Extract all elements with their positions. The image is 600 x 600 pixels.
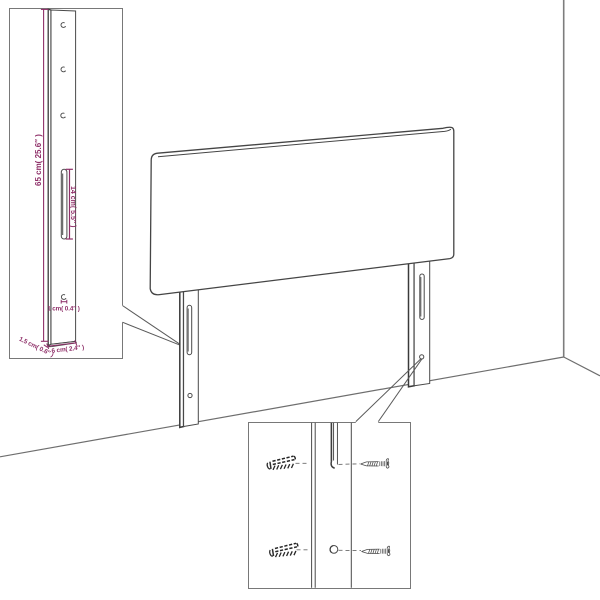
svg-text:14 cm( 5.5″ ): 14 cm( 5.5″ ) [69,186,76,227]
svg-text:1 cm( 0.4″ ): 1 cm( 0.4″ ) [47,305,80,312]
svg-text:65 cm( 25.6″ ): 65 cm( 25.6″ ) [34,134,43,186]
